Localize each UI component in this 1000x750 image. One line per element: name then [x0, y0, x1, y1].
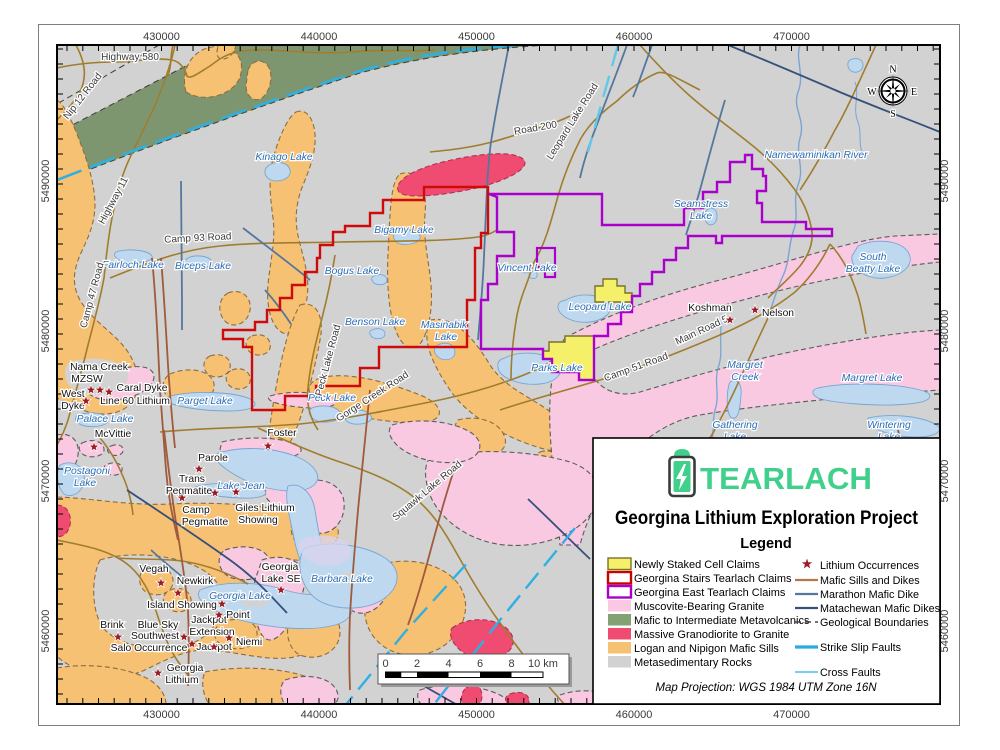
svg-text:Highway 580: Highway 580: [101, 52, 159, 63]
svg-text:MZSW: MZSW: [71, 374, 103, 385]
svg-text:430000: 430000: [143, 709, 180, 721]
svg-text:Beatty Lake: Beatty Lake: [846, 264, 901, 275]
svg-text:Parks Lake: Parks Lake: [531, 363, 583, 374]
svg-text:Strike Slip Faults: Strike Slip Faults: [820, 642, 902, 654]
svg-text:Pegmatite: Pegmatite: [182, 517, 229, 528]
svg-text:Georgina Lithium Exploration P: Georgina Lithium Exploration Project: [615, 507, 918, 529]
svg-text:Dyke: Dyke: [61, 401, 85, 412]
svg-text:Kinago Lake: Kinago Lake: [255, 152, 313, 163]
svg-text:450000: 450000: [458, 31, 495, 43]
svg-text:440000: 440000: [301, 31, 338, 43]
svg-text:Map Projection: WGS 1984 UTM Z: Map Projection: WGS 1984 UTM Zone 16N: [655, 682, 877, 694]
svg-text:4: 4: [445, 658, 451, 670]
svg-text:N: N: [889, 65, 896, 76]
svg-text:Foster: Foster: [267, 428, 297, 439]
svg-text:Muscovite-Bearing Granite: Muscovite-Bearing Granite: [634, 601, 764, 613]
svg-text:5480000: 5480000: [40, 310, 52, 353]
svg-text:Nelson: Nelson: [762, 308, 794, 319]
svg-text:Wintering: Wintering: [867, 420, 911, 431]
svg-text:Masinabik: Masinabik: [421, 320, 468, 331]
svg-text:Logan and Nipigon Mafic Sills: Logan and Nipigon Mafic Sills: [634, 643, 779, 655]
svg-text:Seamstress: Seamstress: [674, 199, 728, 210]
svg-text:S: S: [890, 109, 896, 120]
svg-text:Benson Lake: Benson Lake: [345, 317, 405, 328]
svg-text:460000: 460000: [616, 709, 653, 721]
svg-text:Georgina East Tearlach Claims: Georgina East Tearlach Claims: [634, 587, 786, 599]
svg-text:5460000: 5460000: [40, 610, 52, 653]
svg-text:0: 0: [382, 658, 388, 670]
svg-text:Postagoni: Postagoni: [64, 466, 111, 477]
svg-text:Newly Staked Cell Claims: Newly Staked Cell Claims: [634, 559, 760, 571]
svg-text:Island Showing: Island Showing: [147, 600, 217, 611]
svg-text:Southwest: Southwest: [131, 631, 179, 642]
svg-text:Gathering: Gathering: [712, 420, 757, 431]
svg-text:Geological Boundaries: Geological Boundaries: [820, 617, 929, 629]
svg-text:Camp: Camp: [182, 505, 210, 516]
svg-text:Lake SE: Lake SE: [262, 574, 301, 585]
svg-text:Parole: Parole: [198, 453, 228, 464]
svg-text:Bigamy Lake: Bigamy Lake: [374, 225, 434, 236]
svg-text:Lithium Occurrences: Lithium Occurrences: [820, 560, 920, 572]
svg-text:Parget Lake: Parget Lake: [177, 396, 233, 407]
svg-text:Lithium: Lithium: [165, 675, 198, 686]
svg-text:Biceps Lake: Biceps Lake: [175, 261, 231, 272]
svg-text:E: E: [911, 87, 917, 98]
svg-text:Vincent Lake: Vincent Lake: [497, 263, 557, 274]
svg-text:South: South: [860, 252, 887, 263]
svg-text:Massive Granodiorite to Granit: Massive Granodiorite to Granite: [634, 629, 789, 641]
svg-text:Margret: Margret: [727, 360, 764, 371]
svg-text:460000: 460000: [616, 31, 653, 43]
svg-text:Showing: Showing: [238, 515, 278, 526]
svg-text:Mafic Sills and Dikes: Mafic Sills and Dikes: [820, 575, 920, 587]
svg-text:McVittie: McVittie: [95, 429, 132, 440]
svg-text:5470000: 5470000: [40, 460, 52, 503]
svg-text:Koshman: Koshman: [688, 303, 732, 314]
svg-text:Palace Lake: Palace Lake: [77, 414, 134, 425]
svg-text:Bogus Lake: Bogus Lake: [325, 266, 380, 277]
svg-text:450000: 450000: [458, 709, 495, 721]
svg-text:Niemi: Niemi: [236, 637, 262, 648]
svg-text:430000: 430000: [143, 31, 180, 43]
svg-text:Margret Lake: Margret Lake: [842, 373, 903, 384]
svg-text:470000: 470000: [773, 31, 810, 43]
svg-text:2: 2: [414, 658, 420, 670]
svg-text:Cross Faults: Cross Faults: [820, 667, 881, 679]
svg-text:Trans: Trans: [179, 474, 205, 485]
svg-text:Caral Dyke: Caral Dyke: [117, 383, 168, 394]
svg-text:5480000: 5480000: [939, 310, 951, 353]
svg-text:Pegmatite: Pegmatite: [166, 486, 213, 497]
svg-text:TEARLACH: TEARLACH: [700, 461, 872, 496]
svg-text:Namewaminikan River: Namewaminikan River: [765, 150, 869, 161]
svg-text:Georgia: Georgia: [167, 663, 204, 674]
svg-text:Lake: Lake: [435, 332, 458, 343]
svg-text:Salo Occurrence: Salo Occurrence: [111, 643, 188, 654]
svg-text:470000: 470000: [773, 709, 810, 721]
svg-text:Brink: Brink: [100, 620, 124, 631]
svg-text:Georgia Lake: Georgia Lake: [209, 591, 271, 602]
svg-text:Metasedimentary Rocks: Metasedimentary Rocks: [634, 657, 752, 669]
svg-text:Point: Point: [226, 610, 250, 621]
svg-text:Marathon Mafic Dike: Marathon Mafic Dike: [820, 589, 919, 601]
svg-text:Lake: Lake: [74, 478, 97, 489]
svg-text:Fairloch Lake: Fairloch Lake: [102, 260, 164, 271]
svg-text:5490000: 5490000: [40, 160, 52, 203]
svg-text:Georgia: Georgia: [262, 562, 299, 573]
svg-text:440000: 440000: [301, 709, 338, 721]
svg-text:10 km: 10 km: [528, 658, 558, 670]
svg-text:West: West: [61, 389, 84, 400]
svg-text:8: 8: [508, 658, 514, 670]
svg-text:Legend: Legend: [740, 536, 792, 552]
svg-text:Vegah: Vegah: [139, 564, 168, 575]
svg-text:Line 60 Lithium: Line 60 Lithium: [100, 396, 170, 407]
svg-text:Newkirk: Newkirk: [177, 576, 214, 587]
svg-text:Matachewan Mafic Dikes: Matachewan Mafic Dikes: [820, 603, 941, 615]
svg-text:Georgina Stairs Tearlach Claim: Georgina Stairs Tearlach Claims: [634, 573, 792, 585]
svg-text:Mafic to Intermediate Metavolc: Mafic to Intermediate Metavolcanics: [634, 615, 810, 627]
svg-text:5490000: 5490000: [939, 160, 951, 203]
svg-text:Lake: Lake: [690, 211, 713, 222]
svg-text:Blue Sky: Blue Sky: [138, 620, 179, 631]
svg-text:Creek: Creek: [731, 372, 759, 383]
svg-text:Giles Lithium: Giles Lithium: [235, 503, 295, 514]
svg-text:W: W: [867, 87, 877, 98]
svg-text:Nama Creek: Nama Creek: [70, 362, 129, 373]
svg-text:6: 6: [477, 658, 483, 670]
svg-text:Leopard Lake: Leopard Lake: [569, 302, 632, 313]
svg-text:Barbara Lake: Barbara Lake: [311, 574, 373, 585]
